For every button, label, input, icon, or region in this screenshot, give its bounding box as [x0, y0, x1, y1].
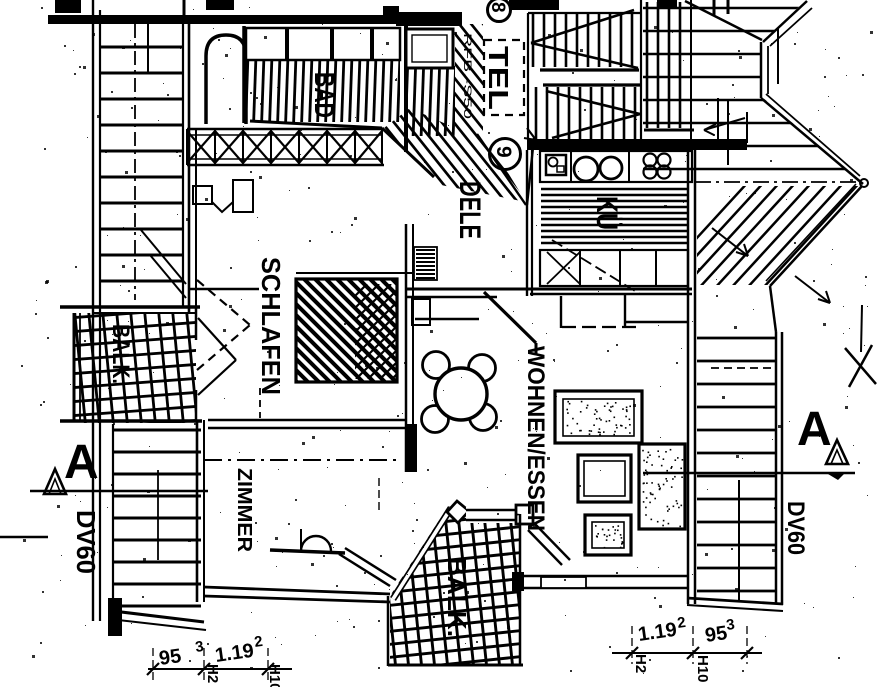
svg-text:A: A: [797, 403, 832, 456]
svg-text:95: 95: [158, 645, 183, 670]
svg-text:H2: H2: [632, 654, 649, 673]
svg-text:BAD: BAD: [309, 72, 340, 118]
svg-text:WOHNEN/ESSEN: WOHNEN/ESSEN: [522, 346, 549, 531]
svg-text:H10: H10: [266, 664, 283, 687]
svg-text:BALK.: BALK.: [442, 557, 472, 637]
svg-text:KÜ: KÜ: [590, 196, 623, 230]
svg-text:TEL: TEL: [483, 46, 514, 110]
svg-text:9: 9: [492, 146, 515, 158]
svg-text:DELE: DELE: [453, 181, 486, 239]
svg-text:H10: H10: [694, 655, 711, 683]
svg-text:A: A: [64, 436, 99, 489]
svg-text:95: 95: [704, 622, 729, 647]
svg-text:H2: H2: [204, 664, 221, 683]
svg-text:8: 8: [487, 2, 508, 13]
svg-text:RFB.-S50: RFB.-S50: [461, 33, 473, 119]
svg-text:BALK.: BALK.: [107, 324, 134, 384]
svg-text:DV60: DV60: [71, 510, 101, 574]
svg-text:ZIMMER: ZIMMER: [233, 468, 255, 553]
svg-text:SCHLAFEN: SCHLAFEN: [256, 257, 286, 395]
